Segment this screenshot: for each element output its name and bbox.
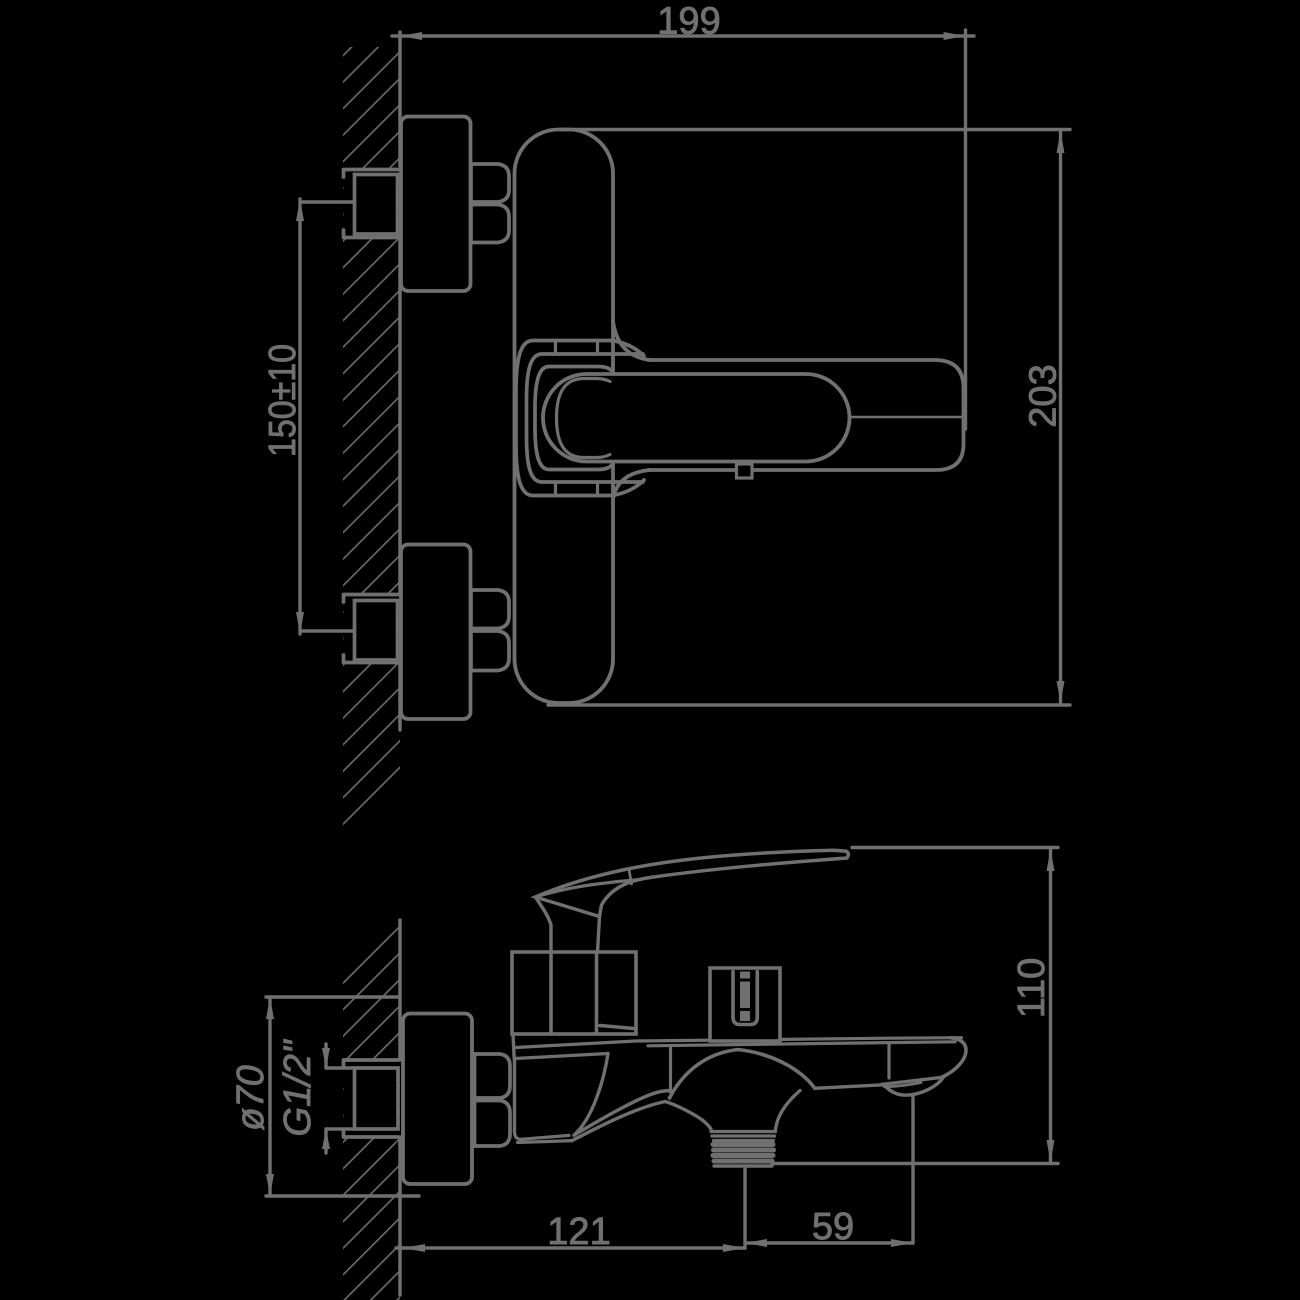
svg-text:ø70: ø70 bbox=[230, 1065, 272, 1130]
svg-text:121: 121 bbox=[547, 1211, 610, 1253]
svg-text:59: 59 bbox=[812, 1206, 854, 1248]
svg-text:199: 199 bbox=[657, 1, 720, 43]
svg-text:G1/2": G1/2" bbox=[277, 1039, 319, 1136]
svg-text:203: 203 bbox=[1023, 364, 1065, 427]
svg-text:110: 110 bbox=[1011, 958, 1053, 1019]
svg-text:150±10: 150±10 bbox=[262, 344, 304, 457]
